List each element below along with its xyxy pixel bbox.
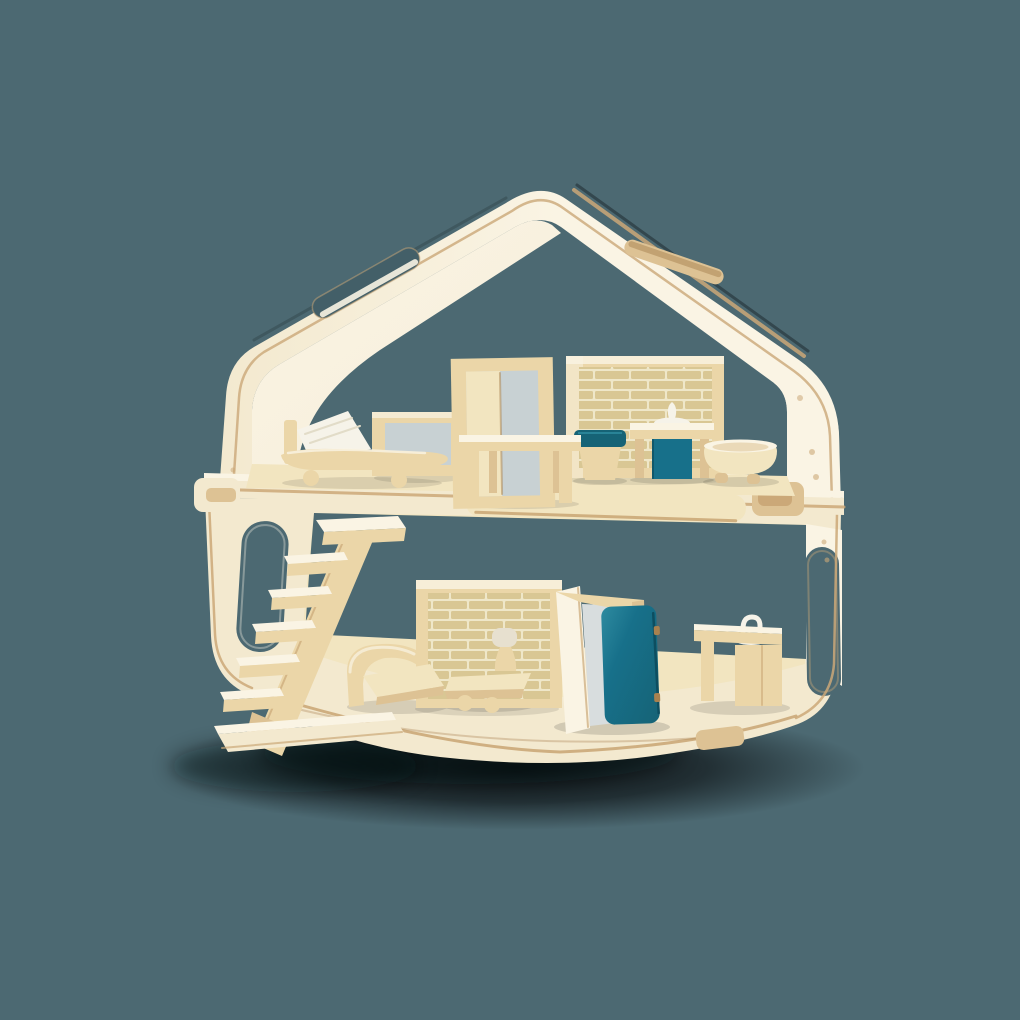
vanity-teal-cabinet	[652, 439, 692, 479]
dowel-dot	[797, 395, 803, 401]
bathtub-foot	[747, 474, 760, 484]
teal-door-panel	[601, 605, 660, 725]
door-hinge	[654, 626, 660, 635]
dowel-dot	[822, 540, 827, 545]
dowel-dot	[231, 468, 236, 473]
coffee-table-foot	[457, 695, 473, 711]
counter-cabinet	[735, 645, 782, 706]
counter-leg	[701, 641, 714, 701]
platform-latch-left	[194, 478, 240, 512]
kitchen-sink	[694, 617, 782, 706]
vanity-leg	[635, 439, 644, 478]
bathtub-inner	[713, 443, 769, 452]
tub-shadow	[703, 477, 779, 487]
vanity-top-edge	[630, 430, 714, 439]
dowel-dot	[825, 558, 830, 563]
latch-left-notch	[206, 488, 236, 502]
coffee-table-foot	[484, 697, 500, 713]
tv-frame-top	[372, 412, 464, 418]
door-hinge	[654, 693, 660, 702]
ground-shadow-stairs	[170, 740, 420, 792]
table-leg	[559, 451, 572, 503]
product-photo-stage	[0, 0, 1020, 1020]
table-top	[459, 435, 581, 442]
table-leg	[466, 451, 479, 503]
table-top-edge	[459, 442, 581, 451]
dollhouse-photo	[0, 0, 1020, 1020]
teal-door	[601, 605, 663, 725]
bed-foot	[303, 470, 319, 486]
bathtub-foot	[715, 473, 728, 483]
vanity-top	[630, 423, 714, 430]
lamp-shade	[492, 628, 517, 647]
bed-foot	[391, 472, 407, 488]
table-back-leg	[489, 447, 497, 493]
brick-wall-lower-top-rail	[416, 580, 562, 589]
toilet-body	[579, 447, 621, 480]
dowel-dot	[813, 474, 819, 480]
doorway-lower	[556, 586, 663, 734]
dowel-dot	[809, 449, 815, 455]
brick-wall-upper-top-rail	[566, 356, 724, 364]
